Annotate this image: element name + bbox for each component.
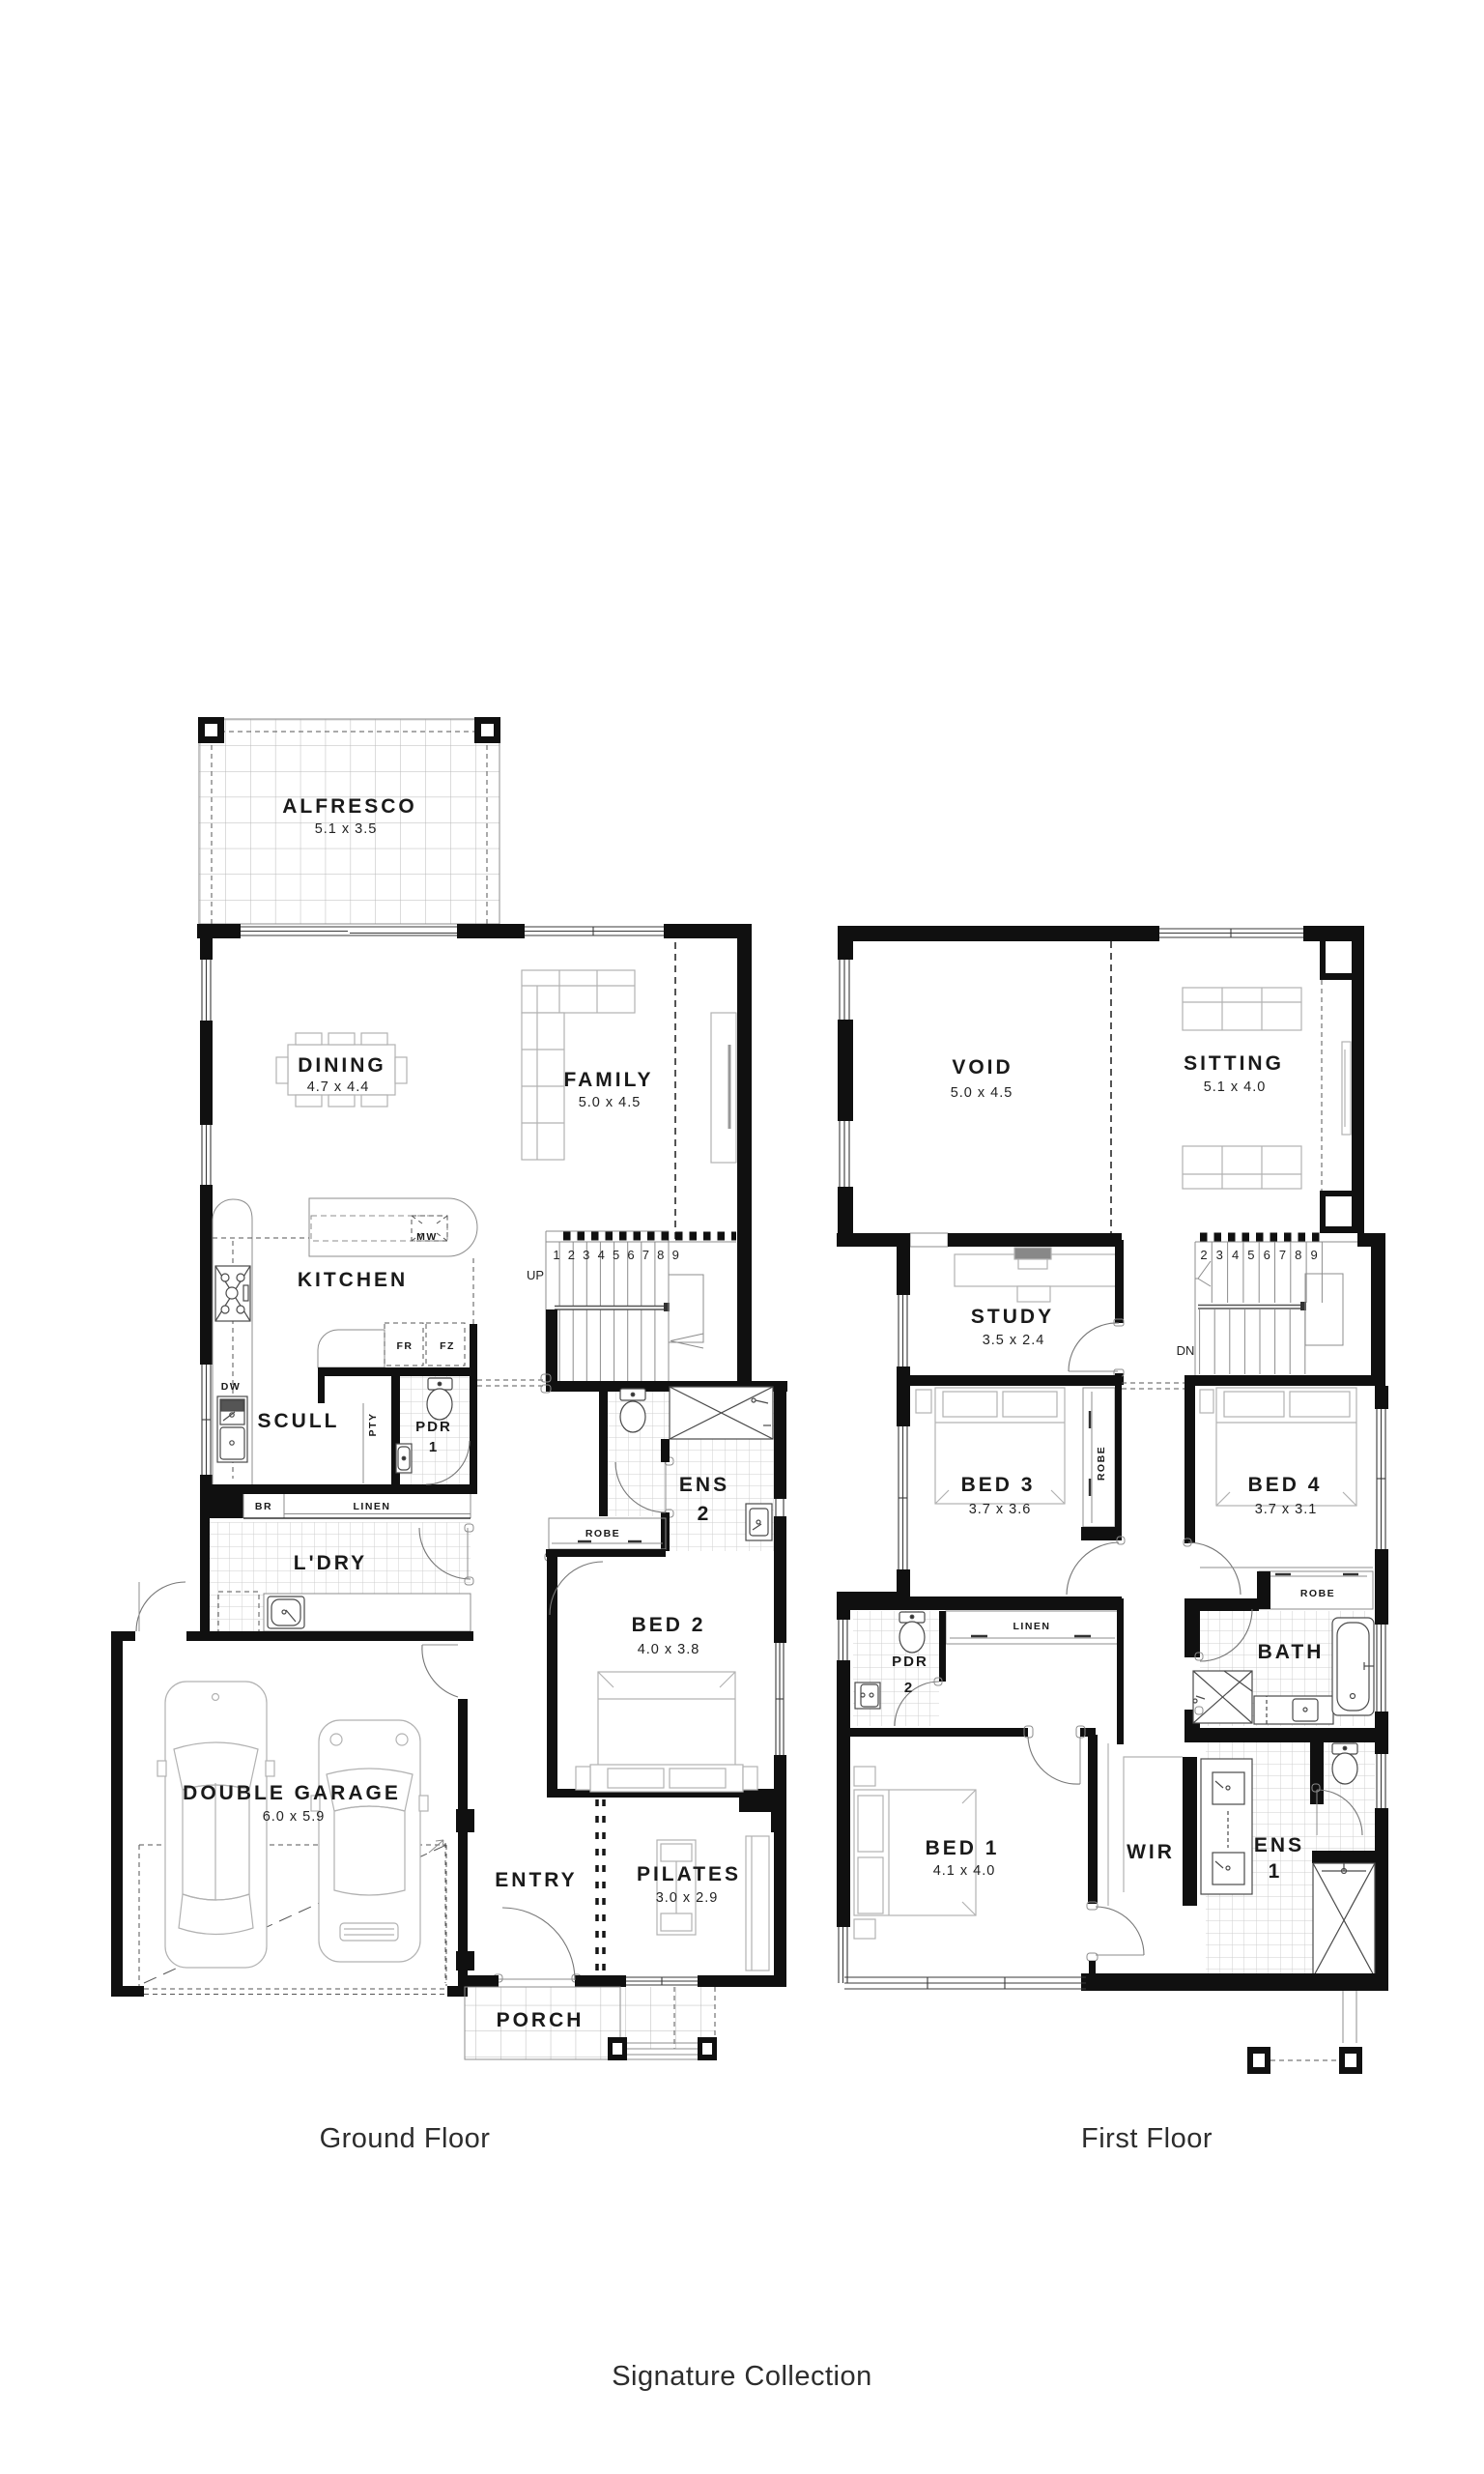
svg-text:1: 1 (429, 1439, 439, 1455)
svg-text:5.1 x 4.0: 5.1 x 4.0 (1204, 1079, 1267, 1095)
svg-text:LINEN: LINEN (354, 1501, 391, 1512)
svg-text:DW: DW (221, 1381, 242, 1393)
svg-text:LINEN: LINEN (1013, 1621, 1051, 1632)
svg-text:VOID: VOID (952, 1056, 1013, 1079)
svg-text:PDR: PDR (415, 1419, 452, 1435)
svg-text:7: 7 (642, 1248, 649, 1262)
svg-text:5.1 x 3.5: 5.1 x 3.5 (315, 821, 378, 837)
svg-text:3.5 x 2.4: 3.5 x 2.4 (983, 1333, 1045, 1348)
svg-text:ALFRESCO: ALFRESCO (282, 795, 417, 818)
svg-text:4.1 x 4.0: 4.1 x 4.0 (933, 1863, 996, 1879)
svg-text:WIR: WIR (1127, 1841, 1175, 1863)
svg-text:4: 4 (598, 1248, 605, 1262)
svg-text:BED 1: BED 1 (926, 1837, 1000, 1859)
svg-text:BED 4: BED 4 (1248, 1474, 1323, 1496)
svg-text:BED 2: BED 2 (632, 1614, 706, 1636)
svg-text:ROBE: ROBE (585, 1528, 620, 1539)
svg-text:2: 2 (698, 1503, 712, 1525)
svg-text:6: 6 (1264, 1248, 1270, 1262)
svg-text:PORCH: PORCH (497, 2009, 585, 2031)
svg-text:Ground Floor: Ground Floor (320, 2123, 491, 2154)
svg-text:MW: MW (416, 1231, 438, 1243)
svg-text:3.0 x 2.9: 3.0 x 2.9 (656, 1890, 719, 1906)
svg-text:BED 3: BED 3 (961, 1474, 1036, 1496)
svg-text:PDR: PDR (892, 1654, 928, 1670)
svg-text:8: 8 (1295, 1248, 1301, 1262)
svg-text:3: 3 (583, 1248, 589, 1262)
svg-text:5.0 x 4.5: 5.0 x 4.5 (579, 1095, 642, 1110)
svg-text:L'DRY: L'DRY (294, 1552, 367, 1574)
svg-text:First Floor: First Floor (1081, 2123, 1213, 2154)
svg-text:Signature Collection: Signature Collection (612, 2361, 872, 2392)
svg-text:4.7 x 4.4: 4.7 x 4.4 (307, 1079, 370, 1095)
svg-text:8: 8 (657, 1248, 664, 1262)
svg-text:STUDY: STUDY (971, 1306, 1054, 1328)
svg-text:PILATES: PILATES (637, 1863, 741, 1885)
svg-text:ROBE: ROBE (1096, 1446, 1107, 1481)
svg-text:ROBE: ROBE (1300, 1588, 1335, 1599)
svg-text:ENS: ENS (679, 1474, 729, 1496)
svg-text:FAMILY: FAMILY (563, 1069, 653, 1091)
svg-text:6: 6 (627, 1248, 634, 1262)
svg-text:DINING: DINING (298, 1054, 386, 1077)
svg-text:UP: UP (527, 1268, 544, 1282)
svg-text:9: 9 (672, 1248, 679, 1262)
svg-text:PTY: PTY (367, 1413, 379, 1437)
svg-text:4: 4 (1232, 1248, 1239, 1262)
svg-text:KITCHEN: KITCHEN (298, 1269, 408, 1291)
svg-text:DN: DN (1177, 1343, 1195, 1358)
svg-text:2: 2 (1200, 1248, 1207, 1262)
svg-text:9: 9 (1310, 1248, 1317, 1262)
svg-text:5: 5 (1247, 1248, 1254, 1262)
svg-text:1: 1 (553, 1248, 559, 1262)
svg-text:4.0 x 3.8: 4.0 x 3.8 (638, 1642, 700, 1657)
svg-text:5.0 x 4.5: 5.0 x 4.5 (951, 1085, 1013, 1101)
svg-text:DOUBLE GARAGE: DOUBLE GARAGE (183, 1782, 401, 1804)
svg-text:6.0 x 5.9: 6.0 x 5.9 (263, 1809, 326, 1825)
svg-text:BR: BR (255, 1501, 272, 1512)
svg-text:ENTRY: ENTRY (495, 1869, 577, 1891)
svg-text:1: 1 (1269, 1860, 1283, 1883)
svg-text:2: 2 (568, 1248, 575, 1262)
svg-text:FR: FR (397, 1340, 414, 1352)
svg-text:BATH: BATH (1258, 1641, 1325, 1663)
svg-text:3.7 x 3.1: 3.7 x 3.1 (1255, 1502, 1318, 1517)
svg-text:FZ: FZ (440, 1340, 455, 1352)
svg-text:3: 3 (1216, 1248, 1223, 1262)
svg-text:5: 5 (613, 1248, 619, 1262)
svg-text:3.7 x 3.6: 3.7 x 3.6 (969, 1502, 1032, 1517)
svg-text:ENS: ENS (1254, 1834, 1304, 1856)
svg-text:SITTING: SITTING (1184, 1052, 1284, 1075)
svg-text:2: 2 (904, 1680, 914, 1696)
svg-text:7: 7 (1279, 1248, 1286, 1262)
svg-text:SCULL: SCULL (258, 1410, 340, 1432)
